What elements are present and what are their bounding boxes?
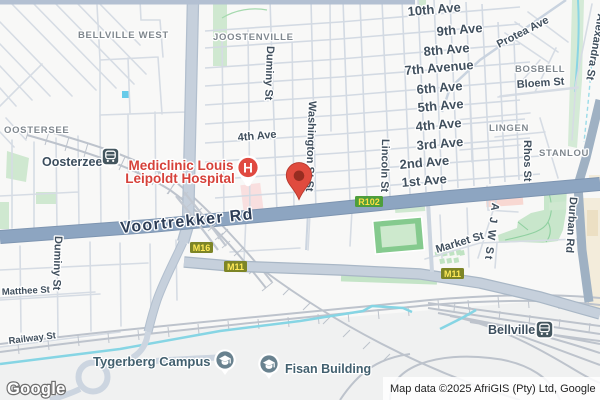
svg-text:BELLVILLE WEST: BELLVILLE WEST (78, 30, 169, 41)
svg-text:OOSTERSEE: OOSTERSEE (4, 125, 69, 136)
svg-text:Leipoldt Hospital: Leipoldt Hospital (125, 171, 235, 186)
svg-text:M11: M11 (227, 262, 244, 272)
svg-text:JOOSTENVILLE: JOOSTENVILLE (213, 32, 294, 43)
svg-text:Tygerberg Campus: Tygerberg Campus (93, 354, 211, 369)
svg-text:R102: R102 (358, 197, 380, 207)
svg-text:M11: M11 (444, 269, 461, 279)
svg-text:Oosterzee: Oosterzee (42, 155, 102, 169)
svg-text:Lincoln St: Lincoln St (378, 139, 391, 193)
svg-text:BOSBELL: BOSBELL (515, 64, 565, 75)
svg-text:H: H (243, 161, 253, 176)
svg-text:LINGEN: LINGEN (489, 123, 529, 134)
svg-text:Bellville: Bellville (488, 323, 535, 337)
svg-text:Duminy St: Duminy St (262, 46, 276, 101)
svg-text:STANLOU: STANLOU (539, 148, 589, 159)
svg-text:M16: M16 (193, 243, 211, 253)
svg-text:Rhos St: Rhos St (521, 140, 533, 182)
svg-text:Map data ©2025 AfriGIS (Pty) L: Map data ©2025 AfriGIS (Pty) Ltd, Google (390, 383, 596, 395)
svg-text:Google: Google (7, 380, 66, 398)
svg-text:Duminy St: Duminy St (50, 236, 64, 291)
svg-text:Fisan Building: Fisan Building (285, 362, 371, 376)
